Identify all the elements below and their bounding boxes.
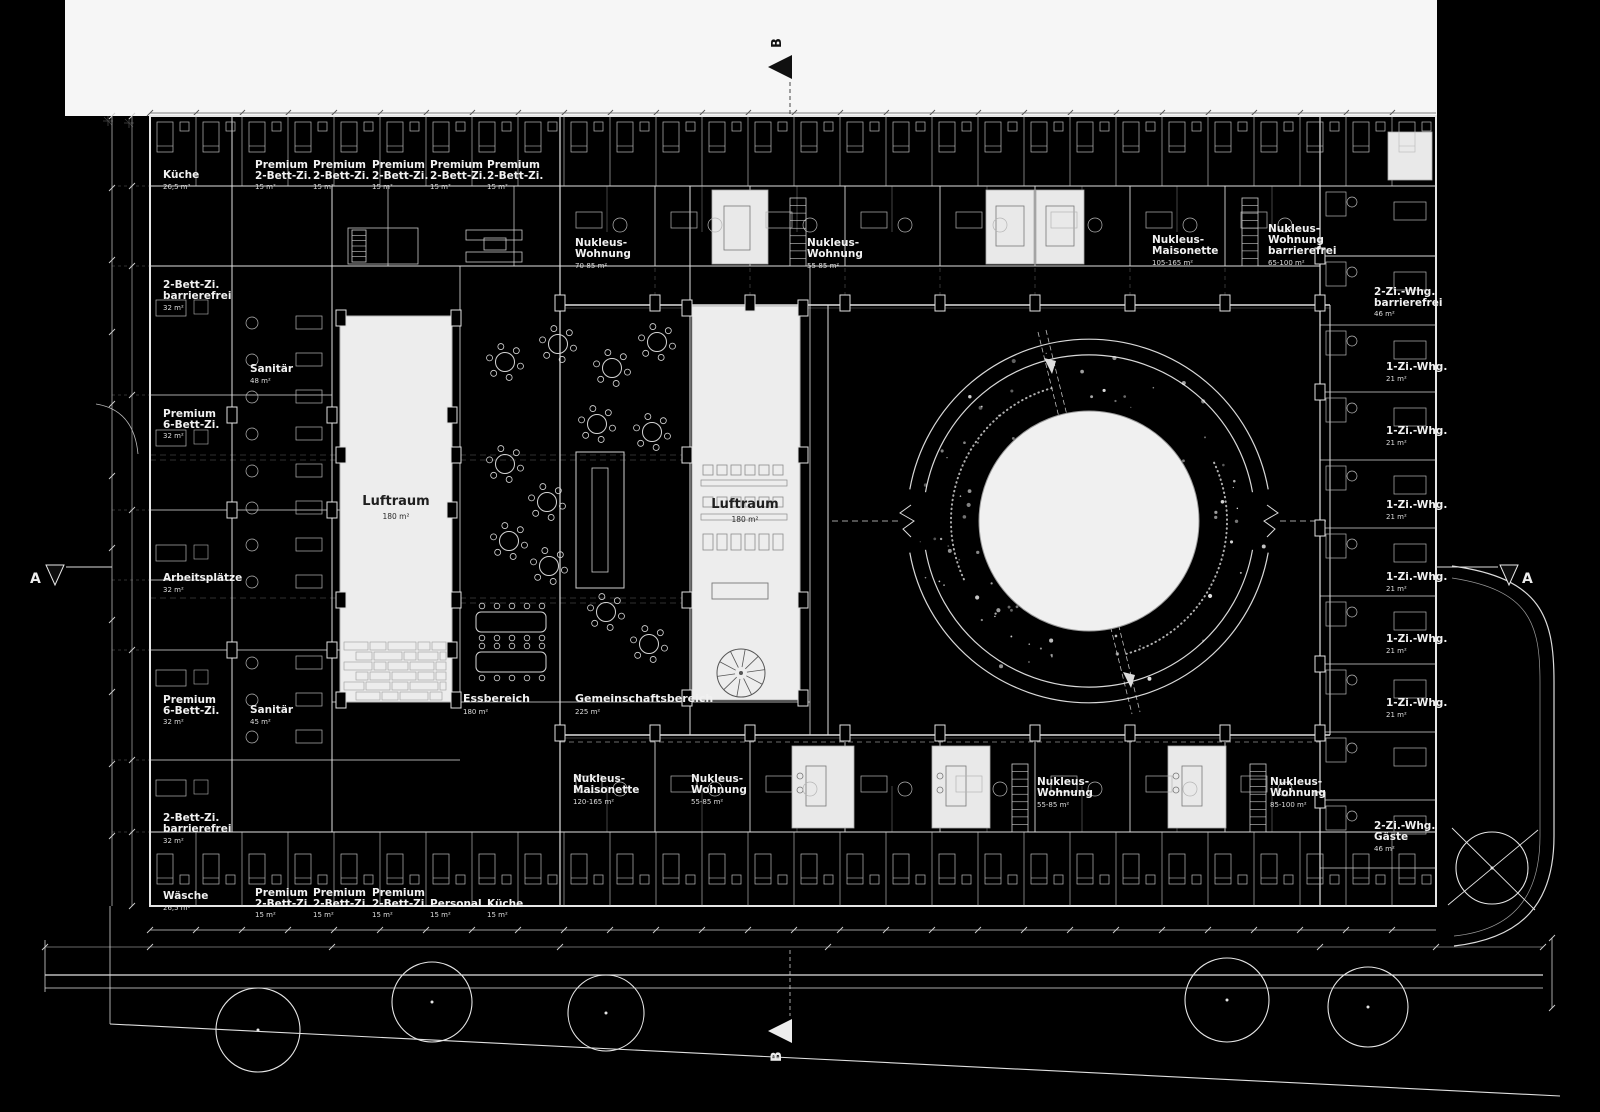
room-area-label: 180 m² (731, 515, 758, 524)
section-marker-label: A (1522, 571, 1533, 587)
room-area-label: 46 m² (1374, 845, 1395, 853)
section-arrow-a-right (1500, 565, 1518, 585)
section-marker-label: A (30, 571, 41, 587)
room-area-label: 55-85 m² (691, 798, 723, 806)
room-name-label: Küche (487, 898, 523, 910)
room-name-label: 1-Zi.-Whg. (1386, 499, 1447, 511)
section-arrow-a-left (46, 565, 64, 585)
room-area-label: 32 m² (163, 837, 184, 845)
room-area-label: 15 m² (430, 911, 451, 919)
room-name-label: 6-Bett-Zi. (163, 705, 219, 717)
room-name-label: Arbeitsplätze (163, 572, 242, 584)
room-area-label: 21 m² (1386, 375, 1407, 383)
room-name-label: Luftraum (362, 494, 429, 509)
room-name-label: Sanitär (250, 704, 294, 716)
room-name-label: 2-Bett-Zi. (372, 170, 428, 182)
section-marker-label: B (769, 1051, 785, 1062)
room-area-label: 21 m² (1386, 647, 1407, 655)
room-name-label: 2-Bett-Zi. (430, 170, 486, 182)
room-name-label: 1-Zi.-Whg. (1386, 697, 1447, 709)
room-area-label: 45 m² (250, 718, 271, 726)
room-name-label: Essbereich (463, 692, 530, 705)
room-name-label: 2-Bett-Zi. (372, 898, 428, 910)
room-area-label: 15 m² (255, 183, 276, 191)
room-name-label: barrierefrei (163, 823, 231, 835)
room-name-label: Sanitär (250, 363, 294, 375)
white-room (712, 190, 768, 264)
room-area-label: 46 m² (1374, 310, 1395, 318)
room-area-label: 85-100 m² (1270, 801, 1307, 809)
room-area-label: 70-85 m² (575, 262, 607, 270)
room-area-label: 15 m² (487, 911, 508, 919)
luftraum-void-west (340, 316, 452, 702)
room-area-label: 26,5 m² (163, 183, 191, 191)
room-name-label: 2-Bett-Zi. (313, 170, 369, 182)
room-area-label: 15 m² (255, 911, 276, 919)
room-area-label: 55-85 m² (1037, 801, 1069, 809)
courtyard-circle (979, 411, 1199, 631)
room-area-label: 225 m² (575, 708, 600, 716)
room-name-label: Luftraum (711, 497, 778, 512)
room-name-label: 2-Bett-Zi. (487, 170, 543, 182)
room-name-label: Wohnung (691, 784, 747, 796)
adjacent-building-band (65, 0, 1437, 128)
room-name-label: Wohnung (575, 248, 631, 260)
room-name-label: 1-Zi.-Whg. (1386, 425, 1447, 437)
room-name-label: Gäste (1374, 831, 1408, 843)
room-area-label: 15 m² (430, 183, 451, 191)
room-name-label: barrierefrei (163, 290, 231, 302)
room-name-label: barrierefrei (1268, 245, 1336, 257)
room-name-label: Personal (430, 898, 482, 910)
room-area-label: 32 m² (163, 432, 184, 440)
room-area-label: 21 m² (1386, 439, 1407, 447)
room-area-label: 15 m² (313, 911, 334, 919)
room-area-label: 32 m² (163, 718, 184, 726)
room-area-label: 26,5 m² (163, 904, 191, 912)
room-name-label: 6-Bett-Zi. (163, 419, 219, 431)
room-area-label: 105-165 m² (1152, 259, 1193, 267)
floor-plan-svg: Premium2-Bett-Zi.15 m²Premium2-Bett-Zi.1… (0, 0, 1600, 1112)
room-area-label: 15 m² (372, 911, 393, 919)
room-name-label: Wohnung (1037, 787, 1093, 799)
architectural-floor-plan: Premium2-Bett-Zi.15 m²Premium2-Bett-Zi.1… (0, 0, 1600, 1112)
room-name-label: Maisonette (1152, 245, 1218, 257)
room-name-label: 1-Zi.-Whg. (1386, 571, 1447, 583)
room-name-label: 2-Bett-Zi. (313, 898, 369, 910)
white-room (1388, 132, 1432, 180)
room-name-label: Küche (163, 169, 199, 181)
section-arrow-b-bottom (768, 1019, 792, 1043)
room-area-label: 32 m² (163, 586, 184, 594)
room-area-label: 15 m² (313, 183, 334, 191)
room-name-label: 1-Zi.-Whg. (1386, 633, 1447, 645)
room-area-label: 65-100 m² (1268, 259, 1305, 267)
room-name-label: 2-Bett-Zi. (255, 170, 311, 182)
room-area-label: 55-85 m² (807, 262, 839, 270)
room-area-label: 48 m² (250, 377, 271, 385)
room-area-label: 21 m² (1386, 585, 1407, 593)
room-name-label: Wäsche (163, 890, 208, 902)
room-name-label: Wohnung (807, 248, 863, 260)
room-name-label: Wohnung (1270, 787, 1326, 799)
room-area-label: 15 m² (372, 183, 393, 191)
room-area-label: 21 m² (1386, 513, 1407, 521)
room-area-label: 180 m² (463, 708, 488, 716)
room-name-label: 2-Bett-Zi. (255, 898, 311, 910)
section-marker-label: B (770, 38, 785, 48)
room-name-label: 1-Zi.-Whg. (1386, 361, 1447, 373)
room-name-label: barrierefrei (1374, 297, 1442, 309)
room-area-label: 15 m² (487, 183, 508, 191)
room-name-label: Maisonette (573, 784, 639, 796)
courtyard (832, 330, 1330, 714)
room-area-label: 21 m² (1386, 711, 1407, 719)
building-mass (65, 0, 1437, 116)
room-name-label: Gemeinschaftsbereich (575, 692, 713, 705)
room-area-label: 180 m² (382, 512, 409, 521)
site-layer (45, 566, 1560, 1096)
room-area-label: 120-165 m² (573, 798, 614, 806)
room-area-label: 32 m² (163, 304, 184, 312)
